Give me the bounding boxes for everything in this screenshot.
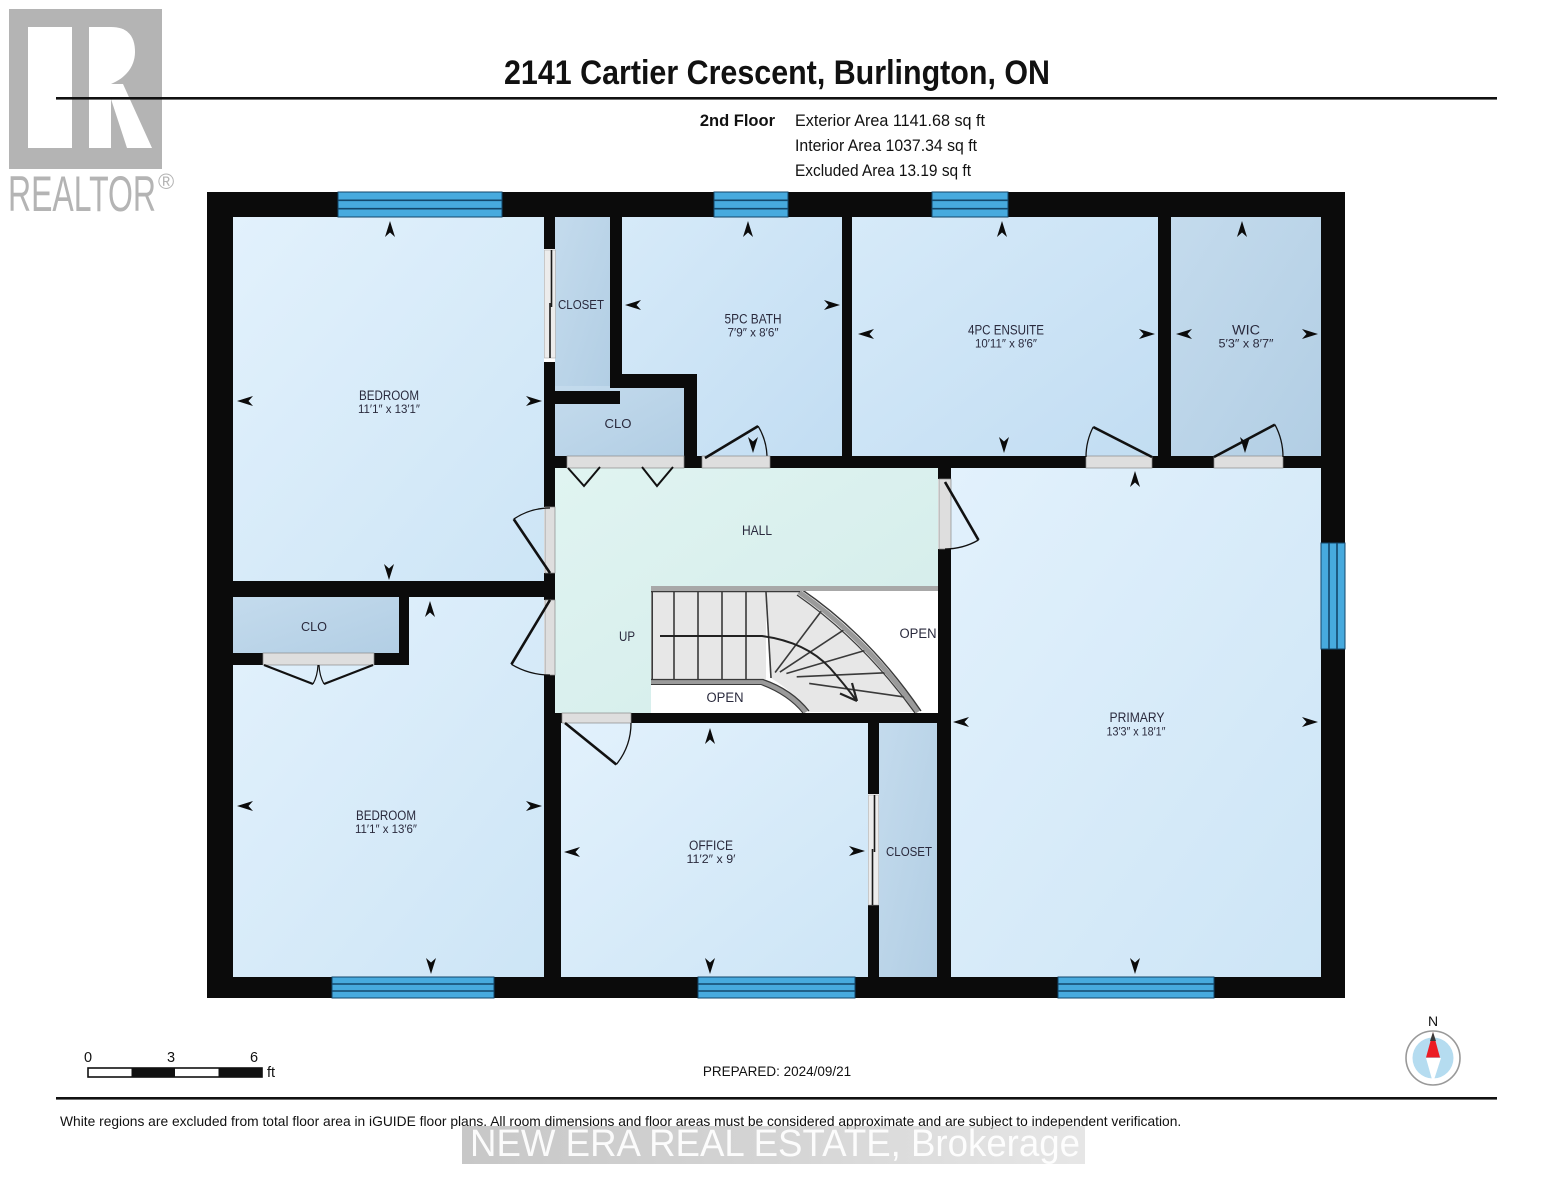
svg-text:ft: ft bbox=[267, 1065, 275, 1081]
svg-text:13′3″ x 18′1″: 13′3″ x 18′1″ bbox=[1107, 725, 1167, 739]
svg-text:11′2″ x 9′: 11′2″ x 9′ bbox=[687, 852, 737, 866]
svg-text:Exterior Area 1141.68 sq ft: Exterior Area 1141.68 sq ft bbox=[795, 112, 985, 130]
svg-text:UP: UP bbox=[619, 629, 635, 644]
svg-text:10′11″ x 8′6″: 10′11″ x 8′6″ bbox=[975, 337, 1038, 351]
svg-text:5PC BATH: 5PC BATH bbox=[725, 312, 782, 327]
svg-text:4PC ENSUITE: 4PC ENSUITE bbox=[968, 323, 1044, 338]
svg-text:2141 Cartier Crescent, Burling: 2141 Cartier Crescent, Burlington, ON bbox=[504, 54, 1050, 92]
svg-text:6: 6 bbox=[250, 1050, 258, 1066]
svg-text:WIC: WIC bbox=[1232, 323, 1260, 338]
svg-text:11′1″ x 13′6″: 11′1″ x 13′6″ bbox=[355, 822, 418, 836]
svg-text:OPEN: OPEN bbox=[900, 626, 937, 641]
svg-text:5′3″ x 8′7″: 5′3″ x 8′7″ bbox=[1219, 337, 1275, 351]
svg-text:11′1″ x 13′1″: 11′1″ x 13′1″ bbox=[358, 402, 421, 416]
svg-text:3: 3 bbox=[167, 1050, 175, 1066]
svg-text:Excluded Area 13.19 sq ft: Excluded Area 13.19 sq ft bbox=[795, 162, 971, 180]
svg-text:CLOSET: CLOSET bbox=[886, 845, 932, 859]
svg-text:BEDROOM: BEDROOM bbox=[356, 808, 416, 823]
svg-text:Interior Area 1037.34 sq ft: Interior Area 1037.34 sq ft bbox=[795, 137, 977, 155]
svg-text:NEW ERA REAL ESTATE, Brokerage: NEW ERA REAL ESTATE, Brokerage bbox=[470, 1123, 1080, 1165]
svg-text:CLOSET: CLOSET bbox=[558, 297, 604, 312]
svg-text:REALTOR: REALTOR bbox=[8, 166, 156, 222]
svg-text:PRIMARY: PRIMARY bbox=[1110, 710, 1165, 725]
svg-text:CLO: CLO bbox=[605, 416, 632, 431]
svg-text:CLO: CLO bbox=[301, 619, 327, 634]
svg-text:7′9″ x 8′6″: 7′9″ x 8′6″ bbox=[728, 326, 780, 340]
svg-text:2nd Floor: 2nd Floor bbox=[700, 112, 776, 130]
svg-text:®: ® bbox=[158, 169, 174, 194]
svg-text:PREPARED: 2024/09/21: PREPARED: 2024/09/21 bbox=[703, 1064, 851, 1079]
svg-text:OPEN: OPEN bbox=[707, 690, 744, 705]
svg-text:HALL: HALL bbox=[742, 523, 772, 538]
svg-text:0: 0 bbox=[84, 1050, 92, 1066]
svg-text:OFFICE: OFFICE bbox=[689, 838, 733, 853]
svg-text:N: N bbox=[1428, 1013, 1438, 1029]
svg-text:BEDROOM: BEDROOM bbox=[359, 388, 419, 403]
